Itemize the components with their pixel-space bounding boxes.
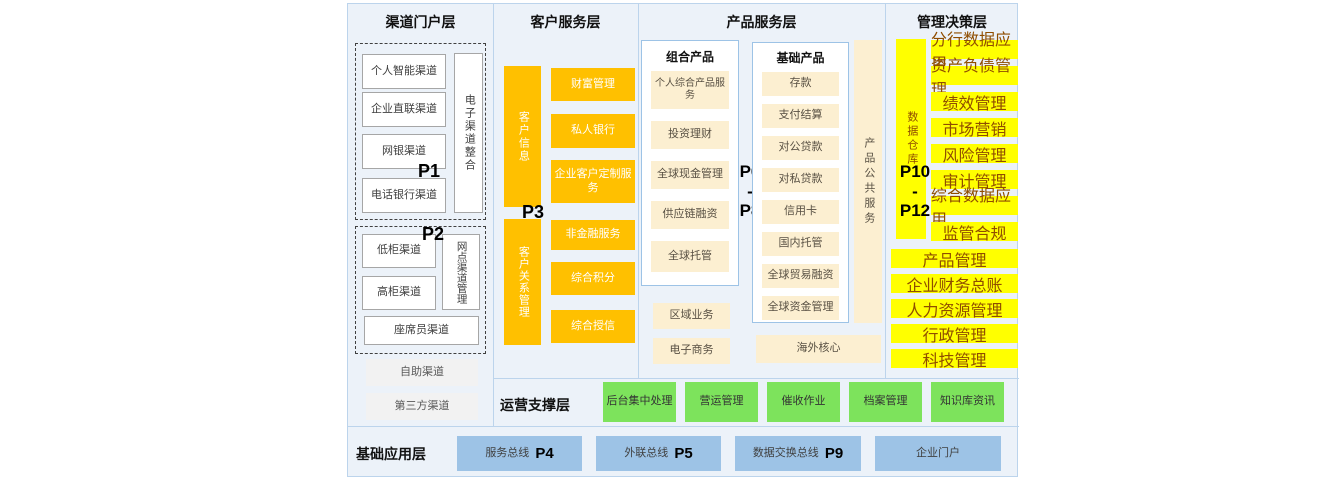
channel-node: 自助渠道 [366,359,478,386]
basic-panel-title: 基础产品 [776,49,824,66]
customer-node: 私人银行 [551,114,635,148]
foundation-box-row: 服务总线 P4 外联总线 P5 数据交换总线 P9 企业门户 [457,436,1001,471]
divider-col1-col2 [493,4,494,426]
customer-node: 非金融服务 [551,220,635,250]
combo-item: 全球托管 [651,241,729,272]
management-narrow-list: 分行数据应用 资产负债管理 绩效管理 市场营销 风险管理 审计管理 综合数据应用… [931,40,1018,241]
basic-product-panel: 基础产品 存款 支付结算 对公贷款 对私贷款 信用卡 国内托管 全球贸易融资 全… [752,42,849,323]
basic-item: 对公贷款 [762,136,839,160]
foundation-node-label: 数据交换总线 [753,447,819,460]
management-node: 产品管理 [891,249,1018,268]
combo-item: 供应链融资 [651,201,729,229]
operation-layer-title: 运营支撑层 [500,395,570,415]
operation-node: 营运管理 [685,382,758,422]
e-channel-integration-bar: 电子渠道整合 [454,53,483,213]
foundation-node: 数据交换总线 P9 [735,436,861,471]
p4-label: P4 [535,445,553,463]
foundation-node: 外联总线 P5 [596,436,721,471]
customer-info-bar: 客户信息 [504,66,541,207]
channel-node: 座席员渠道 [364,316,479,345]
p-range-sep: - [894,182,936,202]
basic-item: 存款 [762,72,839,96]
basic-item: 对私贷款 [762,168,839,192]
management-node: 监管合规 [931,222,1018,241]
customer-relation-bar: 客户关系管理 [504,219,541,345]
basic-item: 信用卡 [762,200,839,224]
management-node: 风险管理 [931,144,1018,163]
product-node: 区域业务 [653,303,730,329]
p10-p12-label: P10 - P12 [894,162,936,221]
p10-label: P10 [894,162,936,182]
operation-node: 催收作业 [767,382,840,422]
combo-panel-title: 组合产品 [666,47,714,65]
product-public-service-bar: 产品公共服务 [854,40,882,323]
p5-label: P5 [674,445,692,463]
foundation-node-label: 企业门户 [916,447,960,460]
customer-node: 综合授信 [551,310,635,343]
channel-node: 企业直联渠道 [362,92,446,127]
channel-node: 第三方渠道 [366,393,478,420]
p12-label: P12 [894,201,936,221]
combo-item: 全球现金管理 [651,161,729,189]
basic-item: 支付结算 [762,104,839,128]
management-node: 科技管理 [891,349,1018,368]
management-node: 行政管理 [891,324,1018,343]
p2-label: P2 [422,225,444,243]
operation-node: 档案管理 [849,382,922,422]
branch-channel-mgmt-bar: 网点渠道管理 [442,234,480,310]
basic-item: 全球资金管理 [762,296,839,320]
foundation-node: 服务总线 P4 [457,436,582,471]
management-wide-list: 产品管理 企业财务总账 人力资源管理 行政管理 科技管理 [891,249,1018,368]
customer-node: 财富管理 [551,68,635,101]
basic-item: 全球贸易融资 [762,264,839,288]
architecture-diagram: 渠道门户层 个人智能渠道 企业直联渠道 网银渠道 电话银行渠道 电子渠道整合 P… [0,0,1333,482]
customer-node: 综合积分 [551,262,635,295]
foundation-layer-title: 基础应用层 [356,444,426,464]
combo-item: 投资理财 [651,121,729,149]
product-layer-title: 产品服务层 [638,12,885,32]
management-node: 市场营销 [931,118,1018,137]
operation-node: 知识库资讯 [931,382,1004,422]
foundation-node-label: 服务总线 [485,447,529,460]
diagram-canvas: 渠道门户层 个人智能渠道 企业直联渠道 网银渠道 电话银行渠道 电子渠道整合 P… [347,3,1018,477]
p1-label: P1 [418,162,440,180]
divider-col2-col3 [638,4,639,378]
operation-box-row: 后台集中处理 营运管理 催收作业 档案管理 知识库资讯 [603,382,1004,422]
product-node: 电子商务 [653,338,730,364]
foundation-node-label: 外联总线 [624,447,668,460]
divider-col3-col4 [885,4,886,378]
foundation-node: 企业门户 [875,436,1001,471]
management-node: 综合数据应用 [931,196,1018,215]
management-node: 绩效管理 [931,92,1018,111]
customer-node: 企业客户定制服务 [551,160,635,203]
channel-layer-title: 渠道门户层 [348,12,493,32]
management-node: 资产负债管理 [931,66,1018,85]
basic-item: 国内托管 [762,232,839,256]
management-node: 人力资源管理 [891,299,1018,318]
operation-node: 后台集中处理 [603,382,676,422]
management-node: 企业财务总账 [891,274,1018,293]
customer-layer-title: 客户服务层 [493,12,638,32]
channel-node: 电话银行渠道 [362,178,446,213]
combo-product-panel: 组合产品 个人综合产品服务 投资理财 全球现金管理 供应链融资 全球托管 [641,40,739,286]
product-node: 海外核心 [756,335,881,363]
channel-node: 个人智能渠道 [362,54,446,89]
combo-item: 个人综合产品服务 [651,71,729,109]
divider-foundation-row [348,426,1019,427]
channel-node: 高柜渠道 [362,276,436,310]
divider-operation-row [493,378,1019,379]
p9-label: P9 [825,445,843,463]
